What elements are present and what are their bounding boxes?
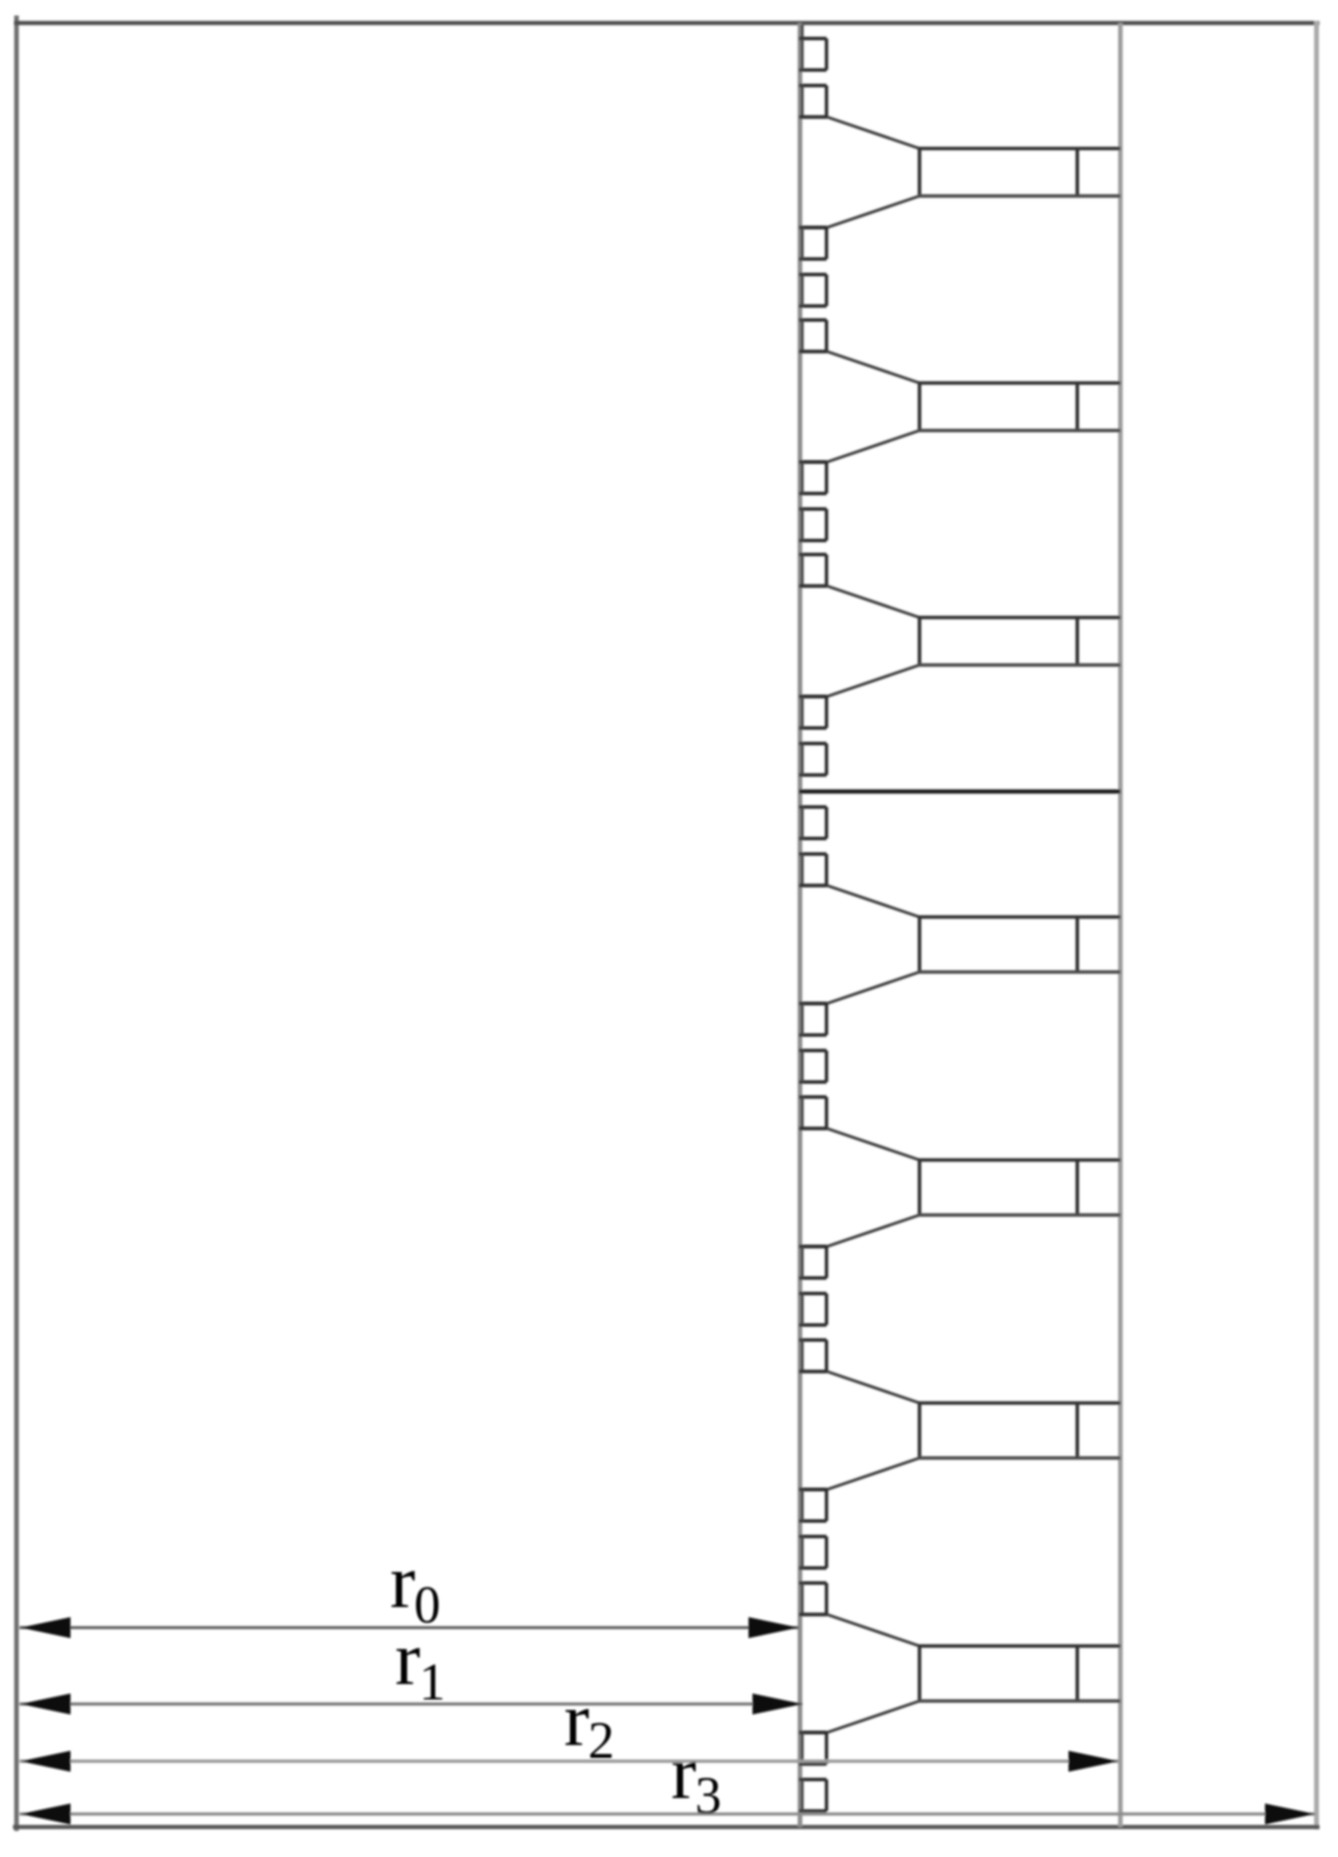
svg-text:1: 1 bbox=[419, 1654, 446, 1712]
svg-text:r: r bbox=[564, 1678, 589, 1762]
svg-text:2: 2 bbox=[588, 1712, 615, 1770]
svg-text:r: r bbox=[671, 1731, 696, 1815]
svg-text:r: r bbox=[395, 1617, 420, 1701]
svg-text:3: 3 bbox=[695, 1767, 722, 1825]
svg-text:r: r bbox=[390, 1540, 415, 1624]
